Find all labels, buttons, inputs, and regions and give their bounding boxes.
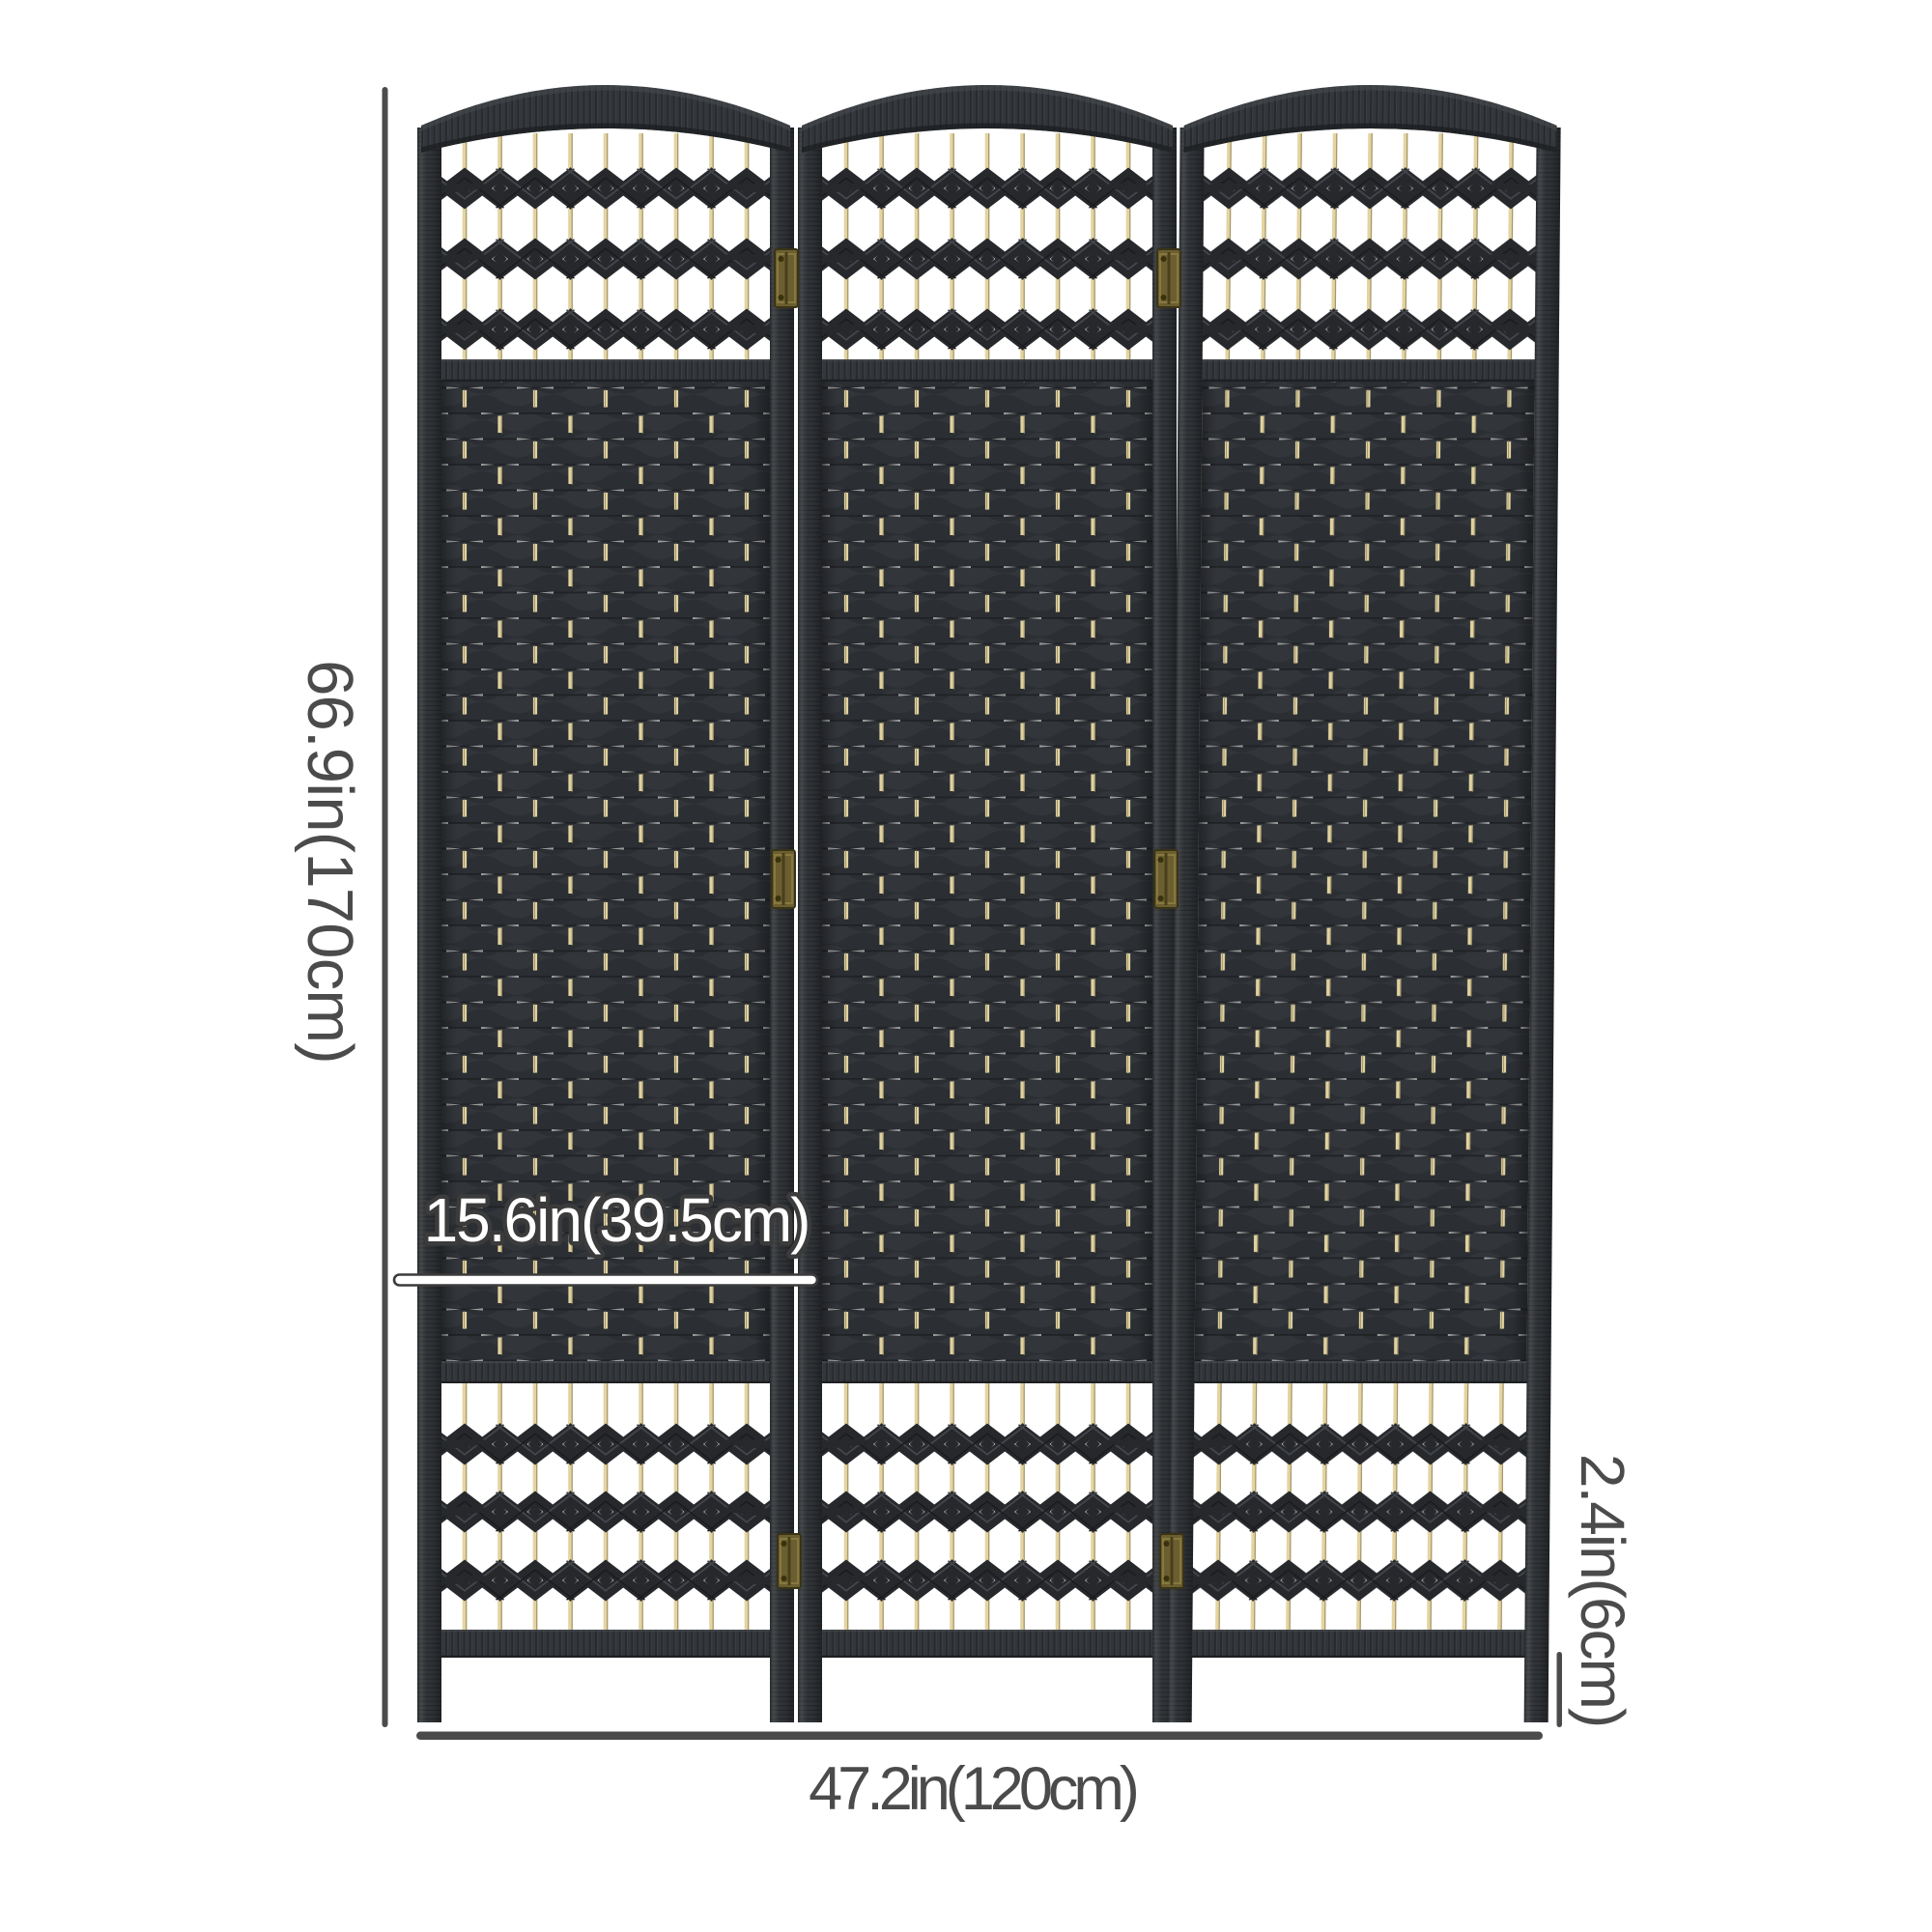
svg-text:66.9in(170cm): 66.9in(170cm) [294, 660, 366, 1064]
svg-text:15.6in(39.5cm): 15.6in(39.5cm) [424, 1185, 810, 1255]
svg-text:2.4in(6cm): 2.4in(6cm) [1568, 1454, 1637, 1726]
svg-text:47.2in(120cm): 47.2in(120cm) [809, 1755, 1137, 1823]
